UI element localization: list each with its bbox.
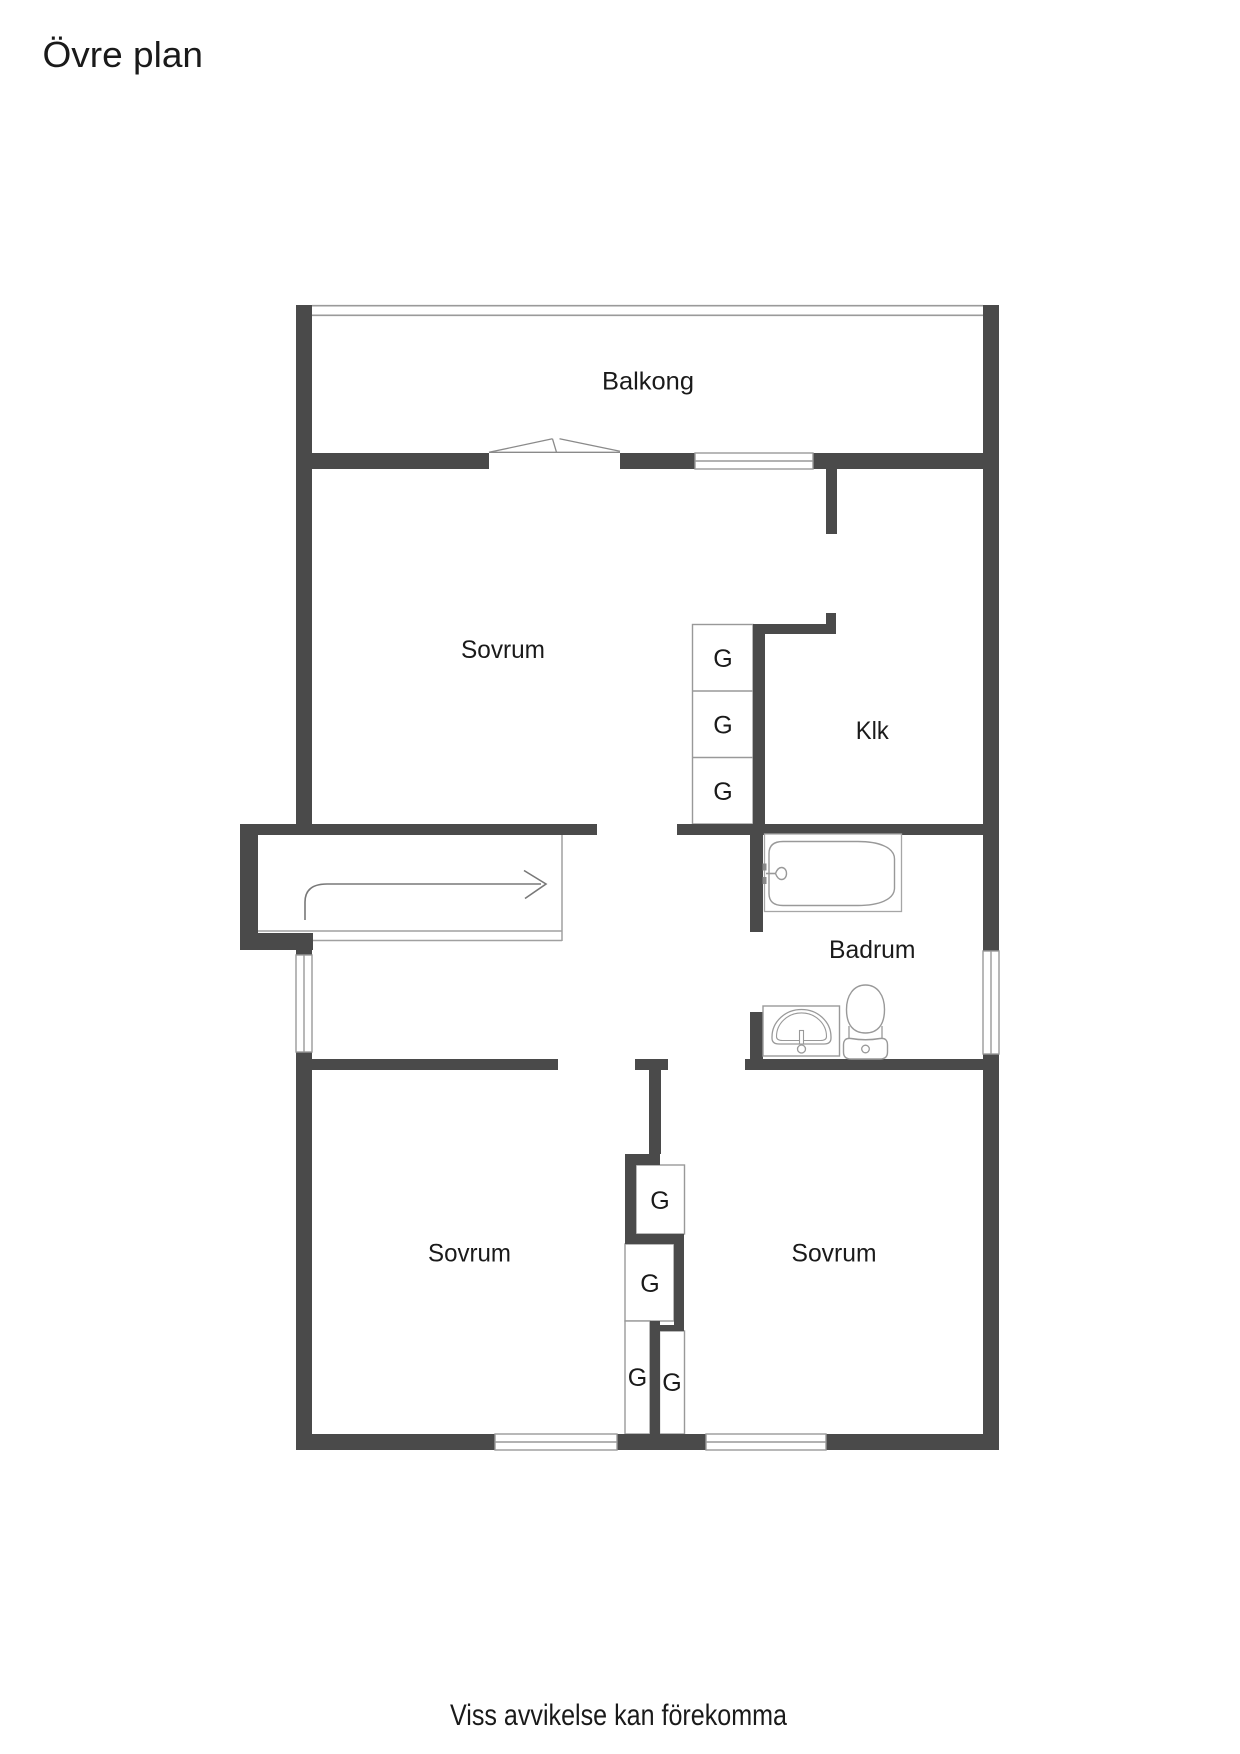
svg-text:G: G [713,645,732,673]
svg-text:G: G [713,712,732,740]
svg-text:Klk: Klk [856,717,889,745]
svg-text:Övre plan: Övre plan [43,34,204,75]
svg-text:Balkong: Balkong [602,368,694,396]
svg-text:G: G [662,1369,681,1397]
svg-text:Viss avvikelse kan förekomma: Viss avvikelse kan förekomma [450,1699,787,1732]
svg-text:G: G [640,1270,659,1298]
svg-text:Sovrum: Sovrum [792,1240,877,1268]
svg-text:G: G [650,1187,669,1215]
svg-text:G: G [628,1364,647,1392]
svg-text:G: G [713,778,732,806]
svg-text:Sovrum: Sovrum [428,1240,511,1268]
svg-text:Badrum: Badrum [829,936,916,964]
svg-text:Sovrum: Sovrum [461,636,545,664]
